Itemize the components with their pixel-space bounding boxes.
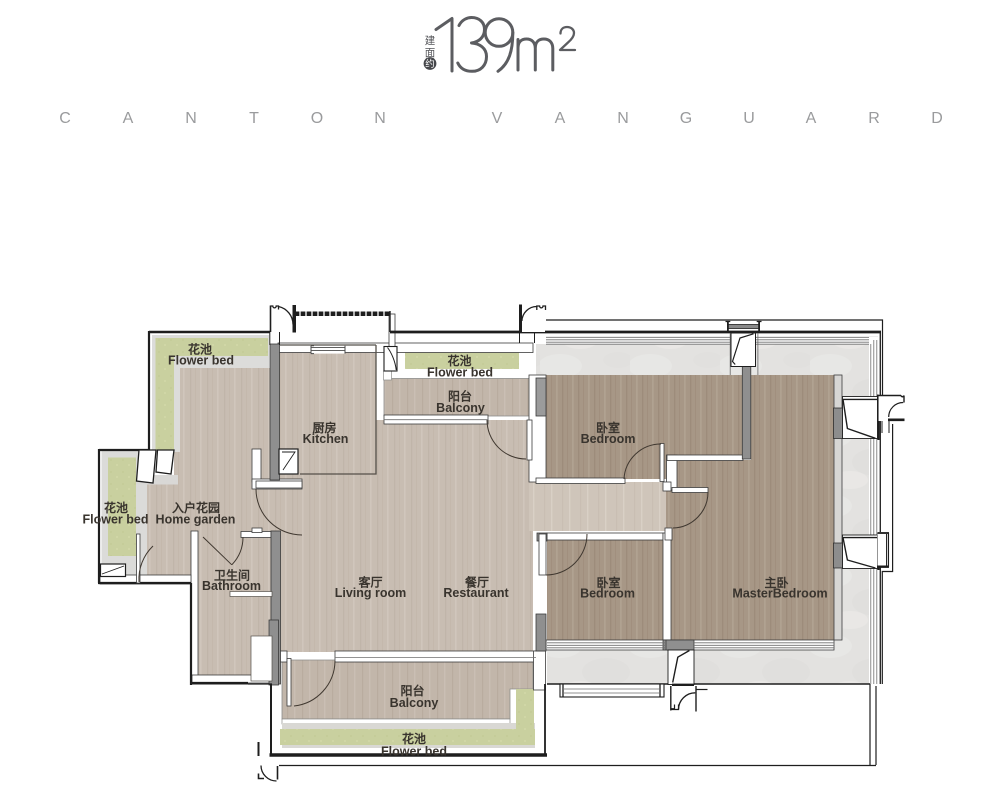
svg-text:D: D: [931, 110, 943, 127]
svg-text:约: 约: [425, 58, 435, 70]
svg-text:Bathroom: Bathroom: [202, 579, 261, 593]
svg-text:Home garden: Home garden: [156, 513, 236, 527]
svg-text:A: A: [806, 110, 817, 127]
svg-text:V: V: [492, 110, 503, 127]
svg-text:Flower bed: Flower bed: [381, 745, 447, 759]
svg-text:MasterBedroom: MasterBedroom: [732, 587, 827, 601]
svg-text:U: U: [743, 110, 755, 127]
svg-text:Flower bed: Flower bed: [83, 513, 149, 527]
svg-text:R: R: [868, 110, 880, 127]
svg-text:Kitchen: Kitchen: [303, 432, 349, 446]
svg-text:建: 建: [425, 34, 436, 47]
svg-text:N: N: [617, 110, 629, 127]
svg-text:A: A: [555, 110, 566, 127]
svg-text:O: O: [311, 110, 323, 127]
svg-text:Restaurant: Restaurant: [443, 586, 509, 600]
svg-text:G: G: [680, 110, 692, 127]
svg-text:C: C: [59, 110, 71, 127]
svg-text:Balcony: Balcony: [436, 401, 485, 415]
svg-text:A: A: [123, 110, 134, 127]
svg-text:Living room: Living room: [335, 586, 407, 600]
svg-text:Flower bed: Flower bed: [168, 354, 234, 368]
svg-text:T: T: [249, 110, 259, 127]
svg-text:Flower bed: Flower bed: [427, 366, 493, 380]
svg-text:N: N: [185, 110, 197, 127]
svg-text:N: N: [374, 110, 386, 127]
svg-text:Bedroom: Bedroom: [580, 587, 635, 601]
svg-text:Bedroom: Bedroom: [581, 432, 636, 446]
svg-text:Balcony: Balcony: [390, 696, 439, 710]
